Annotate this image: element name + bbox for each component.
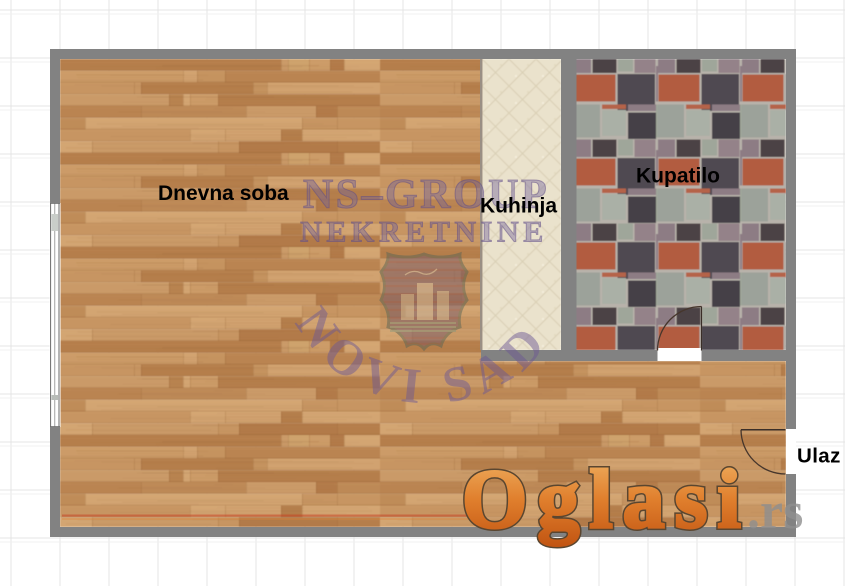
svg-text:Dnevna soba: Dnevna soba [158,182,289,205]
svg-text:Kuhinja: Kuhinja [480,195,557,218]
svg-text:NEKRETNINE: NEKRETNINE [300,216,548,249]
svg-text:Ulaz: Ulaz [797,445,841,468]
svg-text:Kupatilo: Kupatilo [636,165,720,188]
svg-text:Oglasi: Oglasi [462,453,751,546]
svg-text:.rs: .rs [747,483,803,540]
